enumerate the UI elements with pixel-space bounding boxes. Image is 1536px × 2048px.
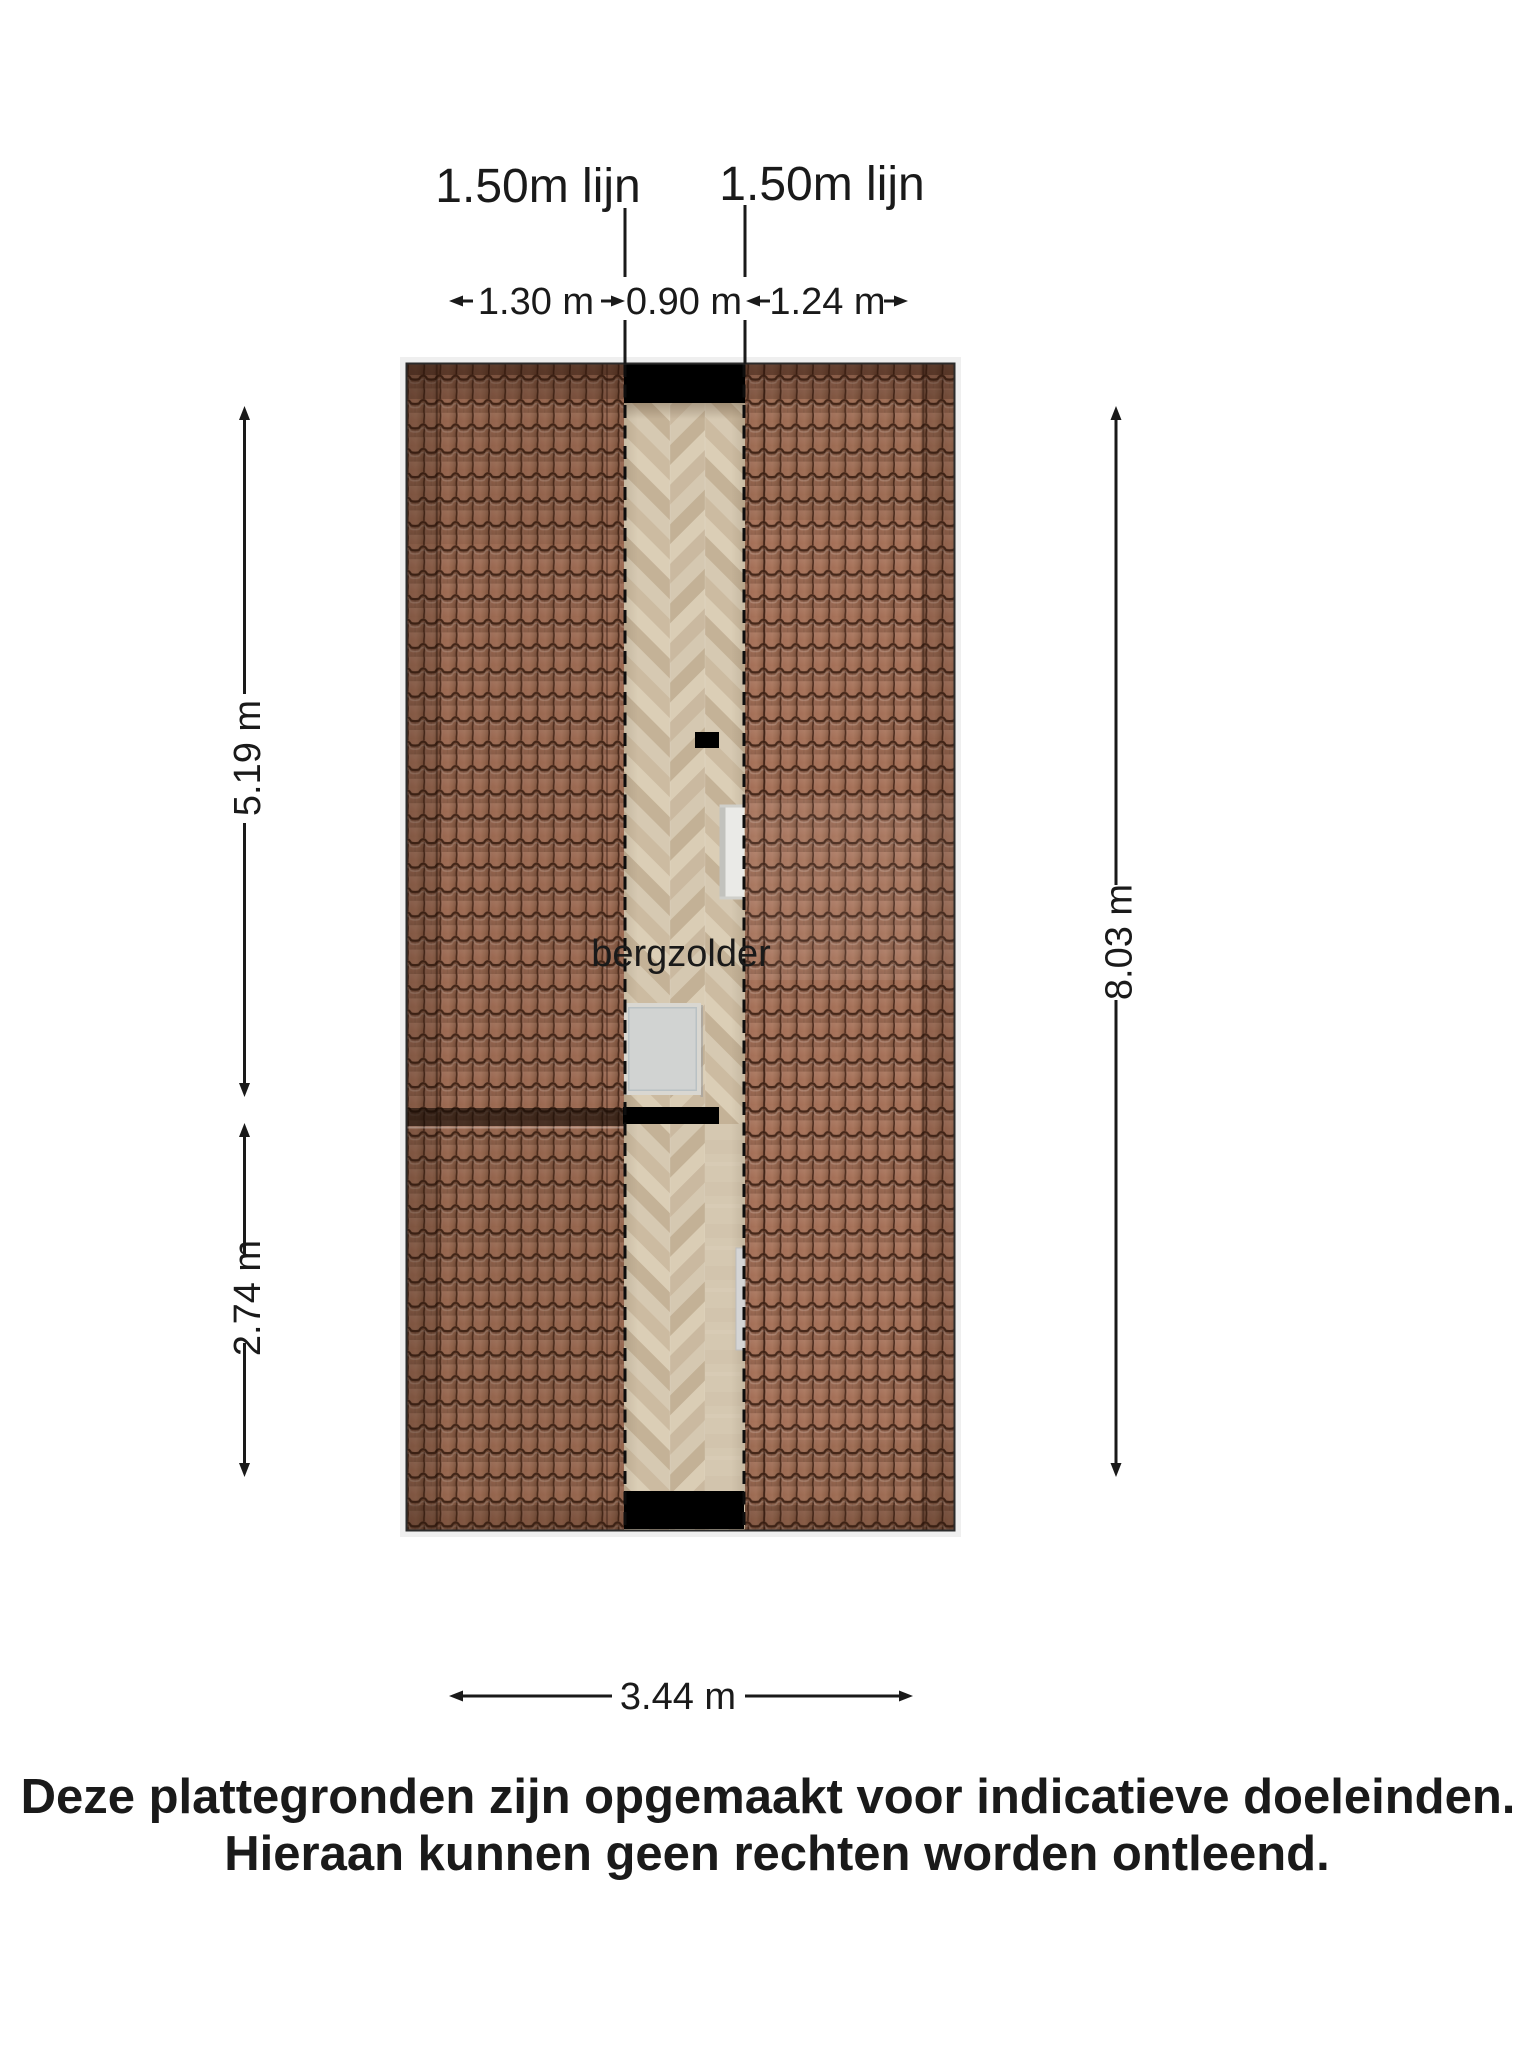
svg-text:Deze plattegronden zijn opgema: Deze plattegronden zijn opgemaakt voor i… (21, 1770, 1516, 1824)
svg-text:8.03 m: 8.03 m (1099, 884, 1141, 1000)
svg-text:bergzolder: bergzolder (591, 933, 771, 975)
svg-text:2.74 m: 2.74 m (227, 1240, 269, 1356)
svg-text:3.44 m: 3.44 m (620, 1676, 736, 1718)
svg-text:0.90 m: 0.90 m (626, 281, 742, 323)
svg-text:1.24 m: 1.24 m (769, 281, 885, 323)
svg-text:5.19 m: 5.19 m (227, 700, 269, 816)
svg-text:1.50m lijn: 1.50m lijn (719, 158, 924, 211)
svg-text:Hieraan kunnen geen rechten wo: Hieraan kunnen geen rechten worden ontle… (224, 1827, 1329, 1881)
svg-text:1.50m lijn: 1.50m lijn (435, 160, 640, 213)
svg-text:1.30 m: 1.30 m (478, 281, 594, 323)
